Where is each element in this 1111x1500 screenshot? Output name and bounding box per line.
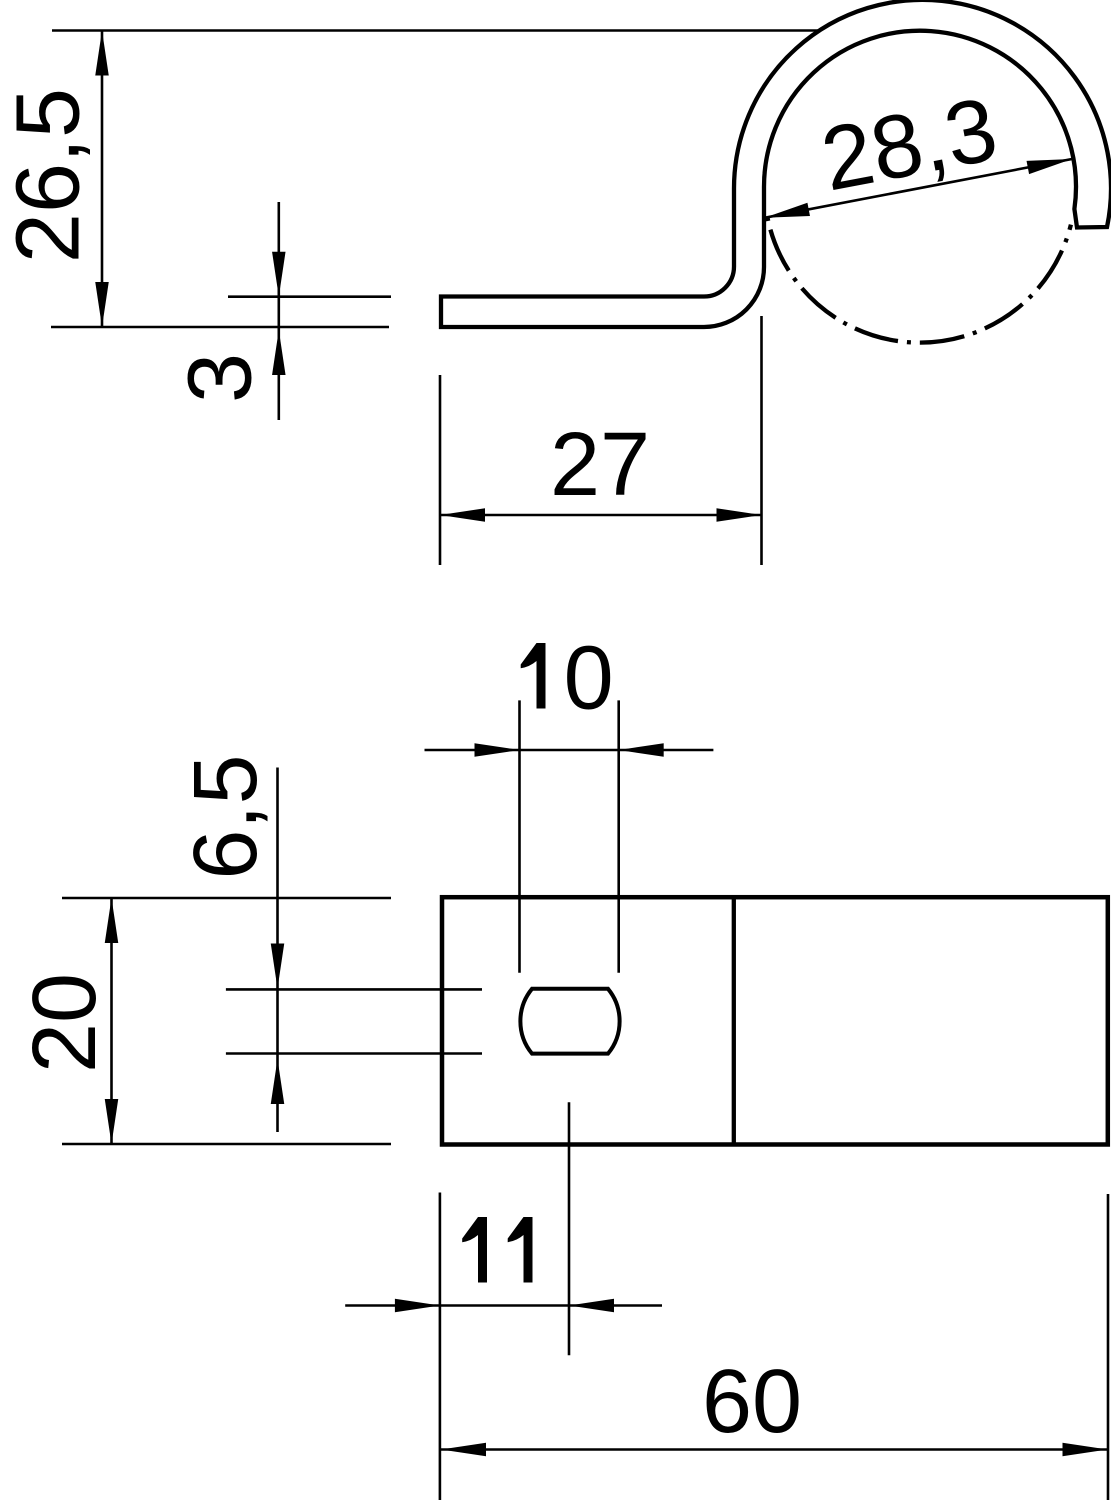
svg-text:0: 0 (564, 629, 614, 729)
svg-text:26,5: 26,5 (0, 88, 99, 263)
svg-text:20: 20 (15, 973, 115, 1073)
svg-text:3: 3 (171, 353, 271, 403)
svg-text:27: 27 (550, 415, 650, 515)
svg-text:6,5: 6,5 (176, 754, 276, 879)
svg-text:60: 60 (702, 1352, 802, 1452)
